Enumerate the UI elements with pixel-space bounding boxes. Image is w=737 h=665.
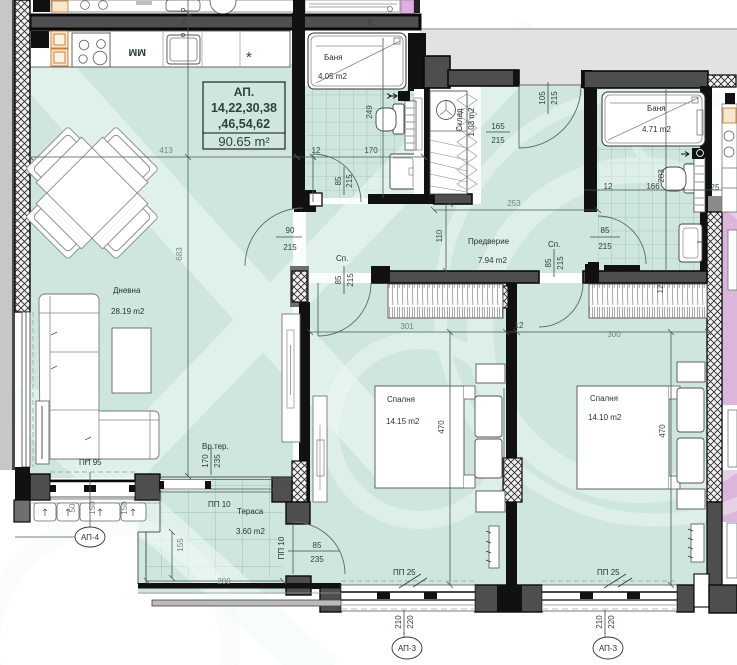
svg-text:АП.: АП. (234, 85, 254, 99)
svg-text:АП-3: АП-3 (398, 644, 417, 653)
svg-text:25: 25 (711, 183, 720, 192)
svg-text:3.60 m2: 3.60 m2 (236, 527, 265, 536)
svg-text:Спалня: Спалня (590, 394, 618, 403)
svg-text:235: 235 (213, 454, 222, 468)
svg-text:Склад: Склад (455, 108, 464, 131)
svg-text:300: 300 (607, 330, 621, 339)
svg-text:25: 25 (366, 18, 375, 26)
svg-text:14.10 m2: 14.10 m2 (588, 413, 622, 422)
svg-text:Предверие: Предверие (468, 237, 510, 246)
svg-text:50: 50 (68, 503, 77, 512)
svg-text:85: 85 (334, 275, 343, 284)
svg-text:200: 200 (217, 577, 231, 586)
svg-text:215: 215 (556, 256, 565, 270)
svg-text:170: 170 (201, 454, 210, 468)
svg-text:683: 683 (175, 247, 184, 261)
svg-text:,46,54,62: ,46,54,62 (218, 117, 270, 131)
svg-text:85: 85 (334, 176, 343, 185)
svg-text:Дневна: Дневна (113, 286, 141, 295)
svg-text:12: 12 (515, 321, 524, 330)
svg-text:ПП 25: ПП 25 (597, 568, 620, 577)
svg-text:Вр.тер.: Вр.тер. (202, 442, 229, 451)
svg-text:12: 12 (604, 182, 613, 191)
svg-text:7.94 m2: 7.94 m2 (478, 256, 507, 265)
svg-text:249: 249 (365, 105, 374, 119)
svg-text:253: 253 (507, 199, 521, 208)
svg-text:155: 155 (176, 538, 185, 552)
svg-text:12: 12 (656, 284, 665, 293)
svg-text:210: 210 (595, 615, 604, 629)
svg-text:90: 90 (286, 226, 295, 235)
svg-text:85: 85 (544, 258, 553, 267)
svg-text:301: 301 (400, 322, 414, 331)
svg-text:150: 150 (120, 501, 129, 515)
svg-text:85: 85 (313, 541, 322, 550)
svg-text:90.65 m²: 90.65 m² (218, 134, 270, 149)
svg-text:85: 85 (601, 226, 610, 235)
svg-text:470: 470 (658, 424, 667, 438)
svg-text:413: 413 (159, 146, 173, 155)
svg-text:210: 210 (394, 615, 403, 629)
svg-text:4.05 m2: 4.05 m2 (318, 72, 347, 81)
svg-text:*: * (246, 49, 252, 66)
svg-text:220: 220 (607, 615, 616, 629)
svg-text:АП-4: АП-4 (81, 533, 100, 542)
svg-text:Спалня: Спалня (387, 395, 415, 404)
svg-text:ПП 10: ПП 10 (208, 500, 231, 509)
svg-text:ПП 95: ПП 95 (79, 458, 102, 467)
svg-text:470: 470 (437, 420, 446, 434)
svg-text:12: 12 (312, 146, 321, 155)
svg-text:170: 170 (364, 146, 378, 155)
svg-text:28.19 m2: 28.19 m2 (111, 307, 145, 316)
svg-text:215: 215 (550, 91, 559, 105)
svg-text:25: 25 (180, 18, 189, 26)
svg-text:235: 235 (310, 555, 324, 564)
svg-text:14,22,30,38: 14,22,30,38 (211, 101, 277, 115)
svg-text:165: 165 (491, 122, 505, 131)
svg-text:Сп.: Сп. (548, 240, 560, 249)
svg-text:215: 215 (598, 242, 612, 251)
svg-text:Тераса: Тераса (237, 507, 264, 516)
svg-text:220: 220 (406, 615, 415, 629)
svg-text:ПП 10: ПП 10 (277, 536, 286, 559)
svg-text:Баня: Баня (647, 104, 665, 113)
svg-text:MM: MM (128, 46, 146, 58)
svg-text:150: 150 (88, 501, 97, 515)
svg-text:215: 215 (283, 243, 297, 252)
svg-text:1.03 m2: 1.03 m2 (467, 107, 476, 136)
svg-text:215: 215 (491, 136, 505, 145)
svg-text:14.15 m2: 14.15 m2 (386, 417, 420, 426)
svg-text:283: 283 (657, 169, 666, 183)
svg-text:4.71 m2: 4.71 m2 (642, 125, 671, 134)
svg-text:Сп.: Сп. (336, 254, 348, 263)
svg-text:215: 215 (345, 174, 354, 188)
svg-text:110: 110 (435, 229, 444, 242)
svg-text:215: 215 (346, 273, 355, 287)
svg-text:105: 105 (538, 91, 547, 105)
svg-text:Баня: Баня (324, 53, 342, 62)
svg-text:ПП 25: ПП 25 (393, 568, 416, 577)
svg-text:АП-3: АП-3 (599, 644, 618, 653)
